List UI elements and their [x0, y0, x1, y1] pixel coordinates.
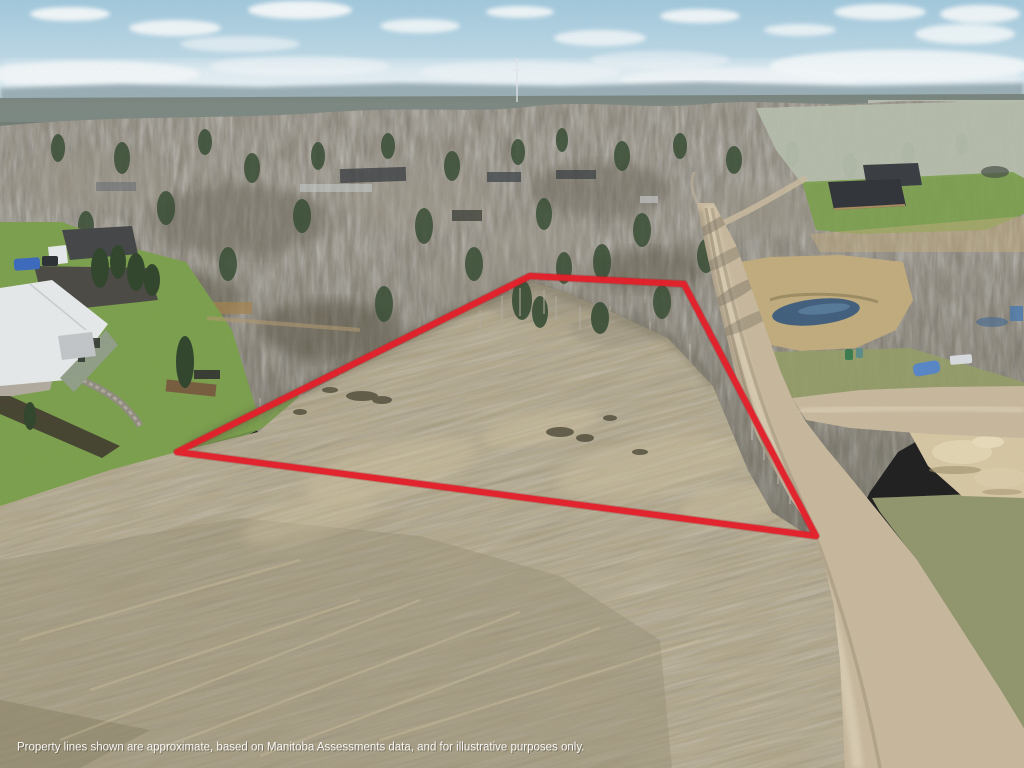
- disclaimer-text: Property lines shown are approximate, ba…: [17, 742, 584, 754]
- photo-grain: [0, 0, 1024, 768]
- disclaimer: Property lines shown are approximate, ba…: [17, 742, 585, 755]
- photo-canvas: Property lines shown are approximate, ba…: [0, 0, 1024, 768]
- aerial-photo: Property lines shown are approximate, ba…: [0, 0, 1024, 768]
